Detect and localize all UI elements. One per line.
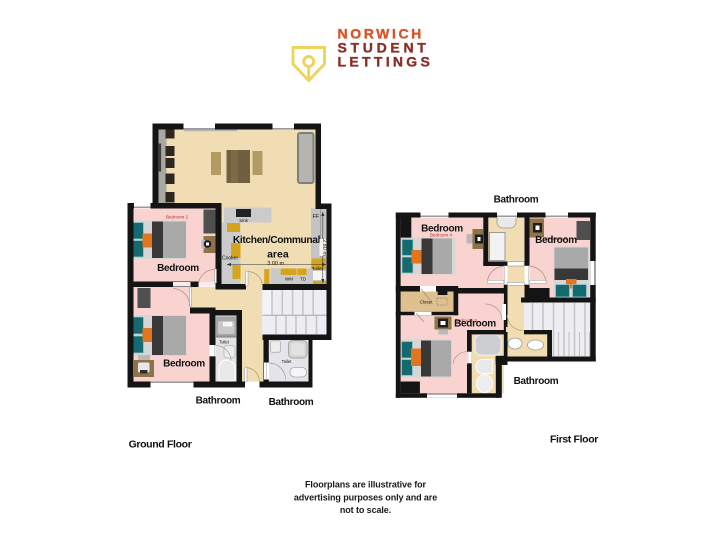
- svg-text:Cooker: Cooker: [222, 256, 238, 262]
- svg-text:advertising purposes only and: advertising purposes only and are: [294, 493, 437, 503]
- svg-text:not to scale.: not to scale.: [340, 505, 391, 515]
- svg-text:Bedroom: Bedroom: [163, 359, 205, 370]
- svg-text:Sink: Sink: [239, 218, 249, 223]
- svg-text:First Floor: First Floor: [550, 434, 598, 446]
- svg-text:Bedroom 4: Bedroom 4: [430, 233, 453, 238]
- svg-text:Bathroom: Bathroom: [514, 376, 559, 387]
- svg-text:FF: FF: [313, 214, 320, 220]
- svg-text:area: area: [267, 249, 289, 261]
- svg-text:Toilet: Toilet: [219, 340, 230, 345]
- svg-text:Kitchen/Communal: Kitchen/Communal: [233, 235, 321, 246]
- svg-text:Bathroom: Bathroom: [269, 397, 314, 408]
- svg-text:Bathroom: Bathroom: [196, 396, 241, 407]
- svg-text:2.80 m: 2.80 m: [321, 239, 327, 256]
- svg-text:Bedroom: Bedroom: [535, 235, 577, 246]
- svg-text:Toilet: Toilet: [282, 359, 293, 364]
- svg-text:Bathroom: Bathroom: [494, 195, 539, 206]
- svg-text:Bedroom: Bedroom: [454, 319, 496, 330]
- svg-text:Ground Floor: Ground Floor: [129, 439, 192, 451]
- svg-text:TD: TD: [300, 277, 307, 282]
- svg-text:3.00 m: 3.00 m: [267, 261, 284, 267]
- svg-text:WM: WM: [285, 277, 293, 282]
- svg-text:Bedroom: Bedroom: [157, 263, 199, 274]
- svg-text:Boiler: Boiler: [312, 266, 324, 271]
- svg-text:Bedroom 2: Bedroom 2: [166, 215, 189, 220]
- svg-text:Floorplans are illustrative fo: Floorplans are illustrative for: [305, 480, 427, 490]
- svg-text:Closet: Closet: [420, 300, 434, 305]
- svg-text:LETTINGS: LETTINGS: [338, 54, 434, 70]
